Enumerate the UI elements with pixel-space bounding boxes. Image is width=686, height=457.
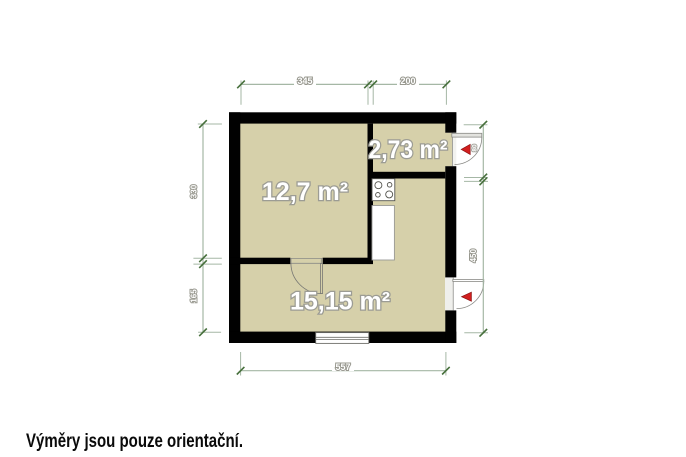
svg-text:450: 450 (469, 248, 478, 262)
svg-text:330: 330 (190, 184, 199, 198)
svg-text:345: 345 (297, 76, 312, 86)
svg-text:557: 557 (335, 362, 350, 372)
svg-text:Výměry jsou pouze orientační.: Výměry jsou pouze orientační. (26, 430, 243, 452)
svg-text:12,7 m²: 12,7 m² (262, 178, 348, 206)
svg-text:2,73 m²: 2,73 m² (369, 136, 448, 164)
svg-text:80: 80 (472, 144, 479, 152)
svg-text:15,15 m²: 15,15 m² (290, 288, 390, 316)
svg-text:165: 165 (190, 289, 199, 303)
svg-text:200: 200 (400, 76, 415, 86)
